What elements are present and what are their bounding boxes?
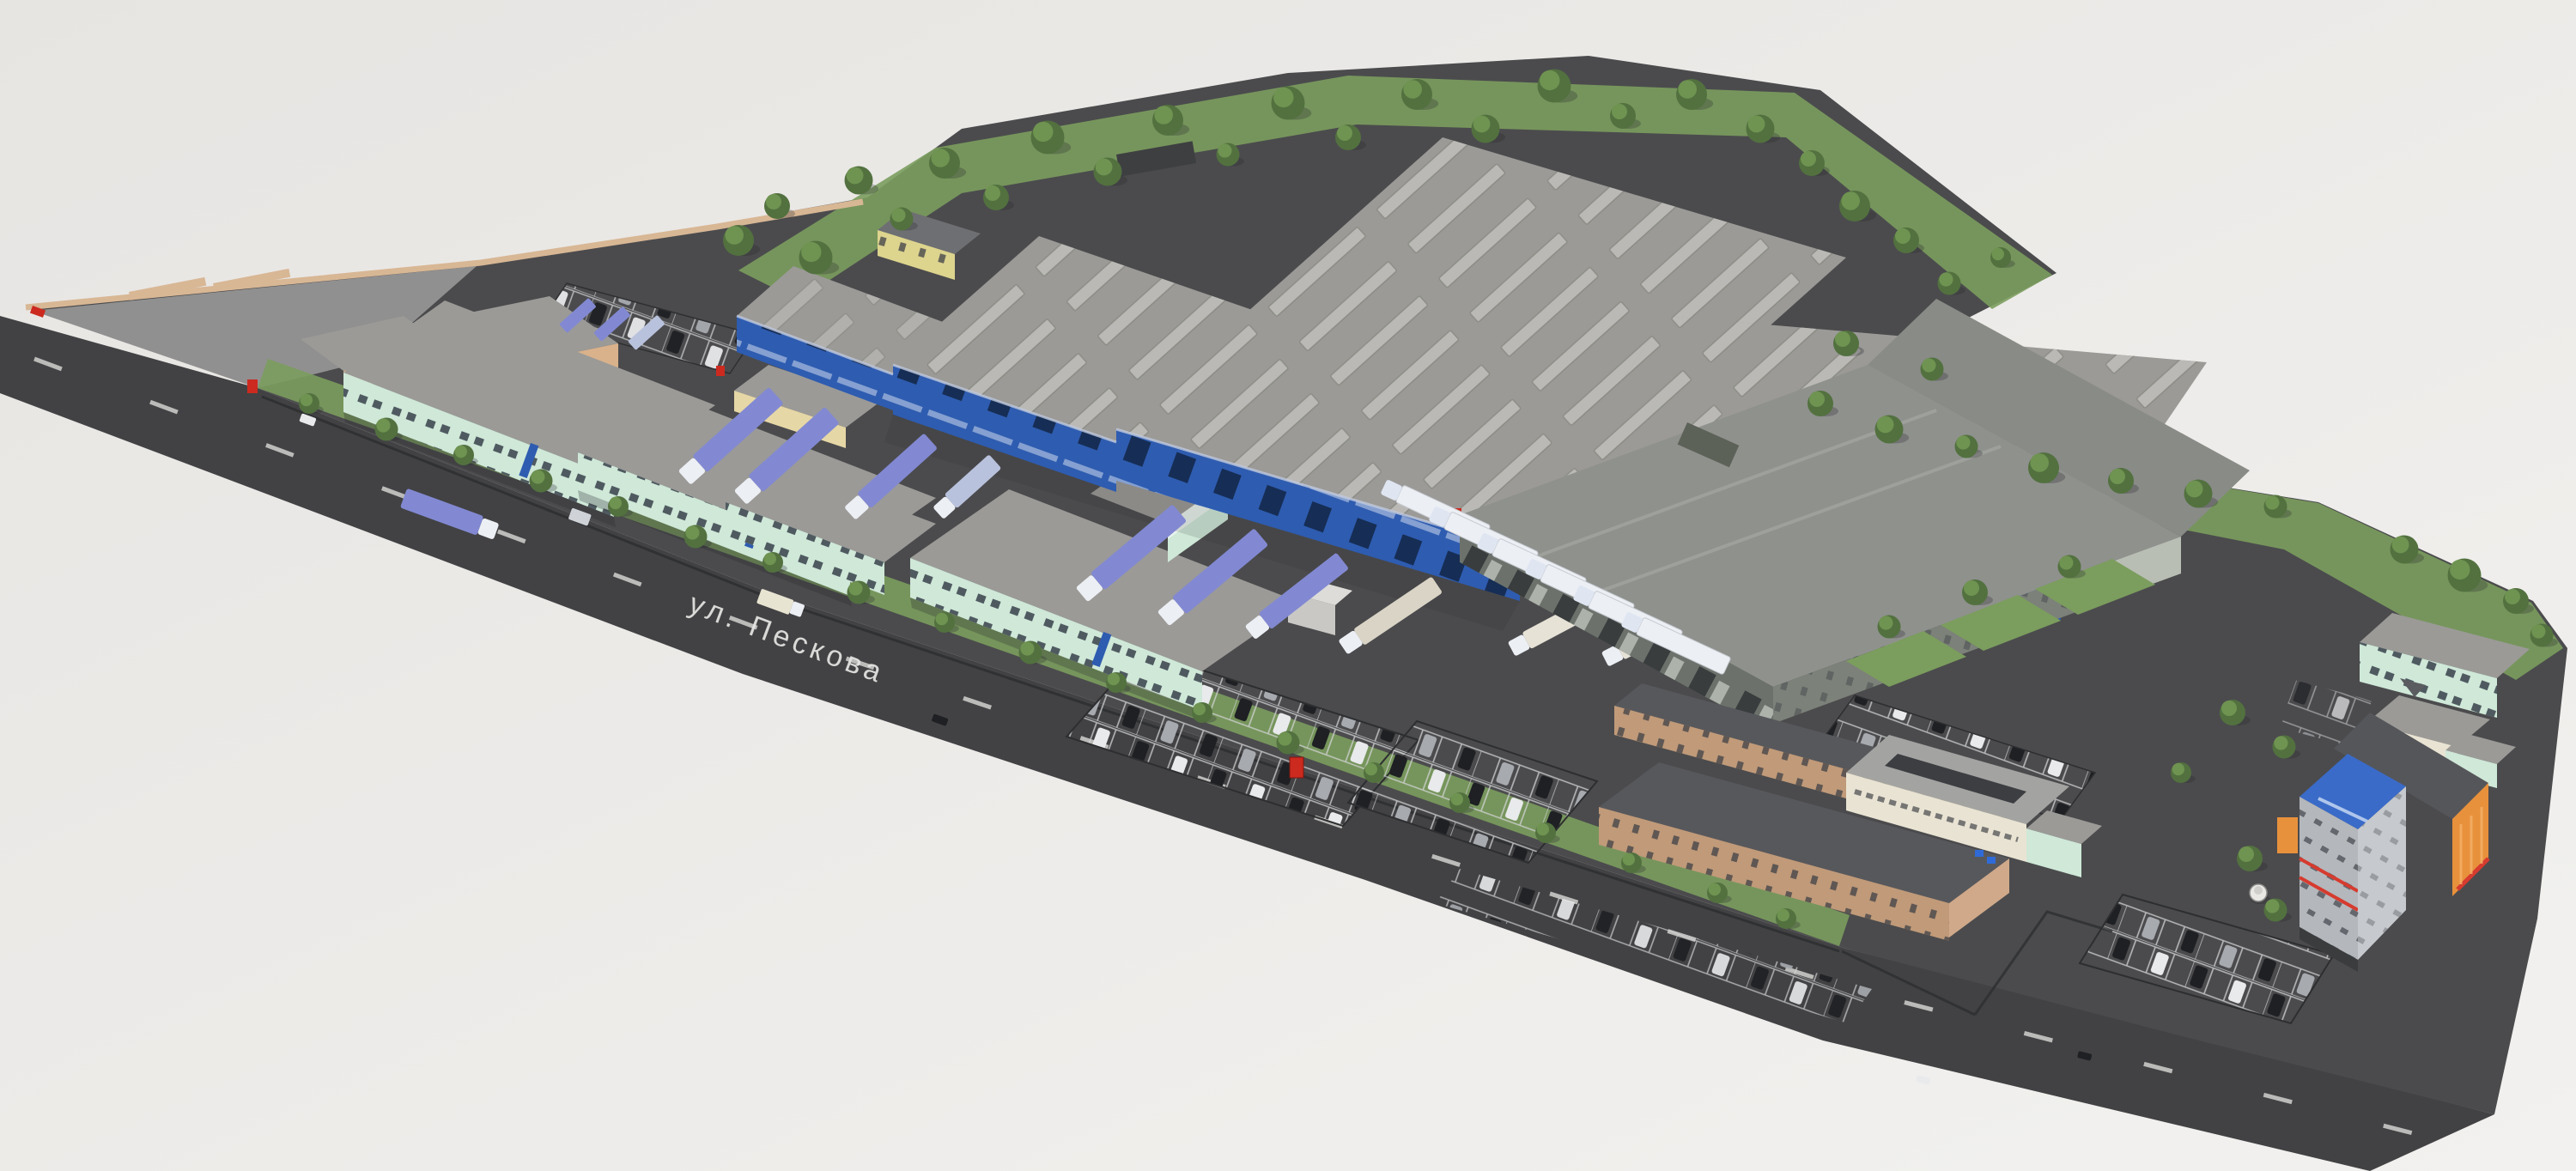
- industrial-park-render: ул. Пескова: [0, 0, 2576, 1171]
- guard-booth: [1290, 757, 1303, 778]
- red-dock-unit: [716, 366, 725, 376]
- render-stage: ул. Пескова: [0, 0, 2576, 1171]
- red-truck-gate: [247, 379, 258, 393]
